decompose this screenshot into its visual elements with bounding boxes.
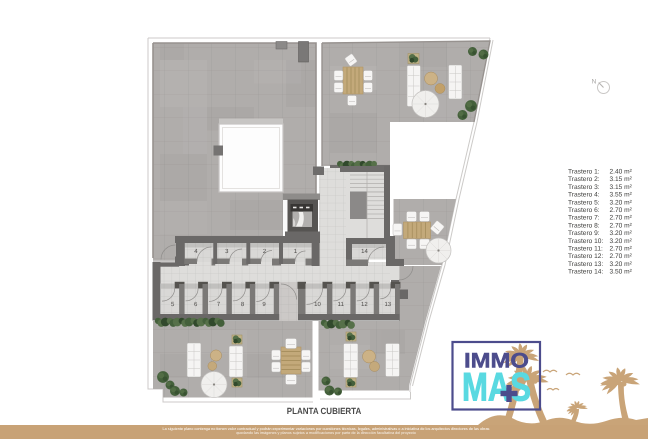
- svg-text:Trastero 6:: Trastero 6:: [568, 207, 600, 214]
- svg-text:2.70 m²: 2.70 m²: [610, 253, 633, 260]
- svg-text:2.40 m²: 2.40 m²: [610, 169, 633, 176]
- svg-text:quedando las imágenes y planos: quedando las imágenes y planos sujetos a…: [236, 431, 416, 435]
- svg-text:3.20 m²: 3.20 m²: [610, 199, 633, 206]
- svg-text:2.70 m²: 2.70 m²: [610, 222, 633, 229]
- svg-text:3.20 m²: 3.20 m²: [610, 261, 633, 268]
- svg-text:3.15 m²: 3.15 m²: [610, 176, 633, 183]
- svg-text:Trastero 7:: Trastero 7:: [568, 215, 600, 222]
- svg-text:MAS: MAS: [462, 366, 531, 410]
- svg-text:3.20 m²: 3.20 m²: [610, 238, 633, 245]
- svg-text:Trastero 1:: Trastero 1:: [568, 169, 600, 176]
- svg-text:3.20 m²: 3.20 m²: [610, 230, 633, 237]
- svg-text:2.70 m²: 2.70 m²: [610, 215, 633, 222]
- svg-text:Trastero 14:: Trastero 14:: [568, 269, 603, 276]
- svg-text:Trastero 8:: Trastero 8:: [568, 222, 600, 229]
- svg-text:Trastero 11:: Trastero 11:: [568, 246, 603, 253]
- svg-text:Trastero 12:: Trastero 12:: [568, 253, 603, 260]
- svg-text:Trastero 10:: Trastero 10:: [568, 238, 603, 245]
- svg-text:12: 12: [361, 301, 368, 308]
- svg-text:3.55 m²: 3.55 m²: [610, 192, 633, 199]
- svg-text:Trastero 4:: Trastero 4:: [568, 192, 600, 199]
- svg-text:13: 13: [384, 301, 391, 308]
- svg-text:11: 11: [338, 301, 345, 308]
- svg-text:Trastero 9:: Trastero 9:: [568, 230, 600, 237]
- svg-text:PLANTA CUBIERTA: PLANTA CUBIERTA: [287, 406, 362, 416]
- svg-text:3.50 m²: 3.50 m²: [610, 269, 633, 276]
- svg-text:Trastero 13:: Trastero 13:: [568, 261, 603, 268]
- svg-text:3.15 m²: 3.15 m²: [610, 184, 633, 191]
- svg-text:N: N: [592, 79, 597, 86]
- svg-text:Trastero 3:: Trastero 3:: [568, 184, 600, 191]
- svg-text:Trastero 2:: Trastero 2:: [568, 176, 600, 183]
- svg-text:14: 14: [361, 248, 368, 255]
- svg-text:10: 10: [314, 301, 321, 308]
- svg-text:2.70 m²: 2.70 m²: [610, 207, 633, 214]
- svg-text:Trastero 5:: Trastero 5:: [568, 199, 600, 206]
- svg-text:2.70 m²: 2.70 m²: [610, 246, 633, 253]
